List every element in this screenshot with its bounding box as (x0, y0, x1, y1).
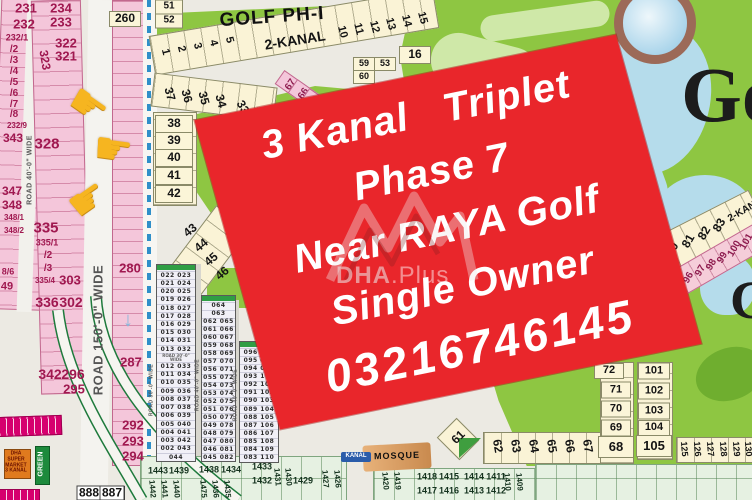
plot-number-pink: 335/4 (35, 277, 55, 285)
plot-number-row: 005 040 (157, 420, 195, 428)
pointing-hand-icon: ☛ (59, 171, 117, 230)
plot-number-row: 011 034 (157, 371, 195, 379)
plot-number-row: 051 076 (202, 405, 235, 413)
plot-number-pink: 302 (59, 295, 82, 309)
plot-number-row: 049 078 (202, 421, 235, 429)
plot-number-cream: 40 (155, 149, 193, 167)
plot-number-green-row: 1417 (417, 487, 437, 496)
down-arrow-icon: ↓ (123, 310, 133, 330)
plot-number: 3 (191, 42, 203, 51)
plot-number-pink: 49 (1, 282, 13, 293)
plot-number-row: 053 074 (202, 389, 235, 397)
plot-number-pink: /4 (10, 67, 18, 77)
plot-number: 14 (399, 14, 413, 29)
plot-number-pink: 342 (38, 367, 61, 381)
plot-number-row: 012 033 (157, 362, 195, 370)
plot-number-row: 086 107 (240, 429, 278, 437)
plot-number-cream: 51 (155, 0, 183, 15)
plot-number: 126 (692, 441, 702, 457)
plot-number-row: 006 039 (157, 412, 195, 420)
plot-number-row: 008 037 (157, 395, 195, 403)
plot-number-pink: /2 (10, 45, 18, 55)
plot-number-row: 021 024 (157, 279, 195, 287)
plot-number-pink: 8/6 (2, 268, 15, 277)
plot-number-green-row: 1420 (380, 472, 390, 490)
plot-number: 5 (223, 36, 235, 45)
plot-number-pink: 232 (13, 18, 35, 31)
plot-number: 45 (202, 250, 220, 268)
plot-number-row: 004 041 (157, 428, 195, 436)
golf-course-label: G (730, 273, 752, 327)
road-label: ROAD 30'-0" WIDE (150, 364, 155, 416)
plot-number-pink: /3 (10, 56, 18, 66)
plot-number-pink: 294 (122, 450, 144, 463)
plot-number-cream: 41 (155, 167, 193, 185)
plot-number-white: 888 (77, 486, 102, 500)
plot-number-green-row: 1441 (159, 480, 169, 498)
tiny-column: 064063062 065061 066060 067059 068058 06… (201, 295, 236, 462)
green-strip-label: GREEN (38, 452, 45, 477)
road-label: ROAD 40'-0" WIDE (234, 369, 239, 421)
plot-number-cream: 52 (155, 14, 183, 29)
plot-number-cream: 101 (638, 363, 670, 380)
golf-course-label: Go (681, 56, 752, 134)
plot-number-cream: 16 (399, 46, 431, 64)
plot-number-pink: 321 (55, 50, 77, 63)
plot-number-green-row: 1431 (272, 468, 282, 486)
plot-number-row: 047 080 (202, 437, 235, 445)
plot-number-row: 085 108 (240, 438, 278, 446)
plot-number-pink: 348 (2, 199, 22, 211)
plot-number-pink: 348/1 (4, 214, 24, 222)
plot-number-pink: 296 (61, 367, 84, 381)
plot-number: 2 (175, 45, 187, 54)
plot-number-row: 087 106 (240, 421, 278, 429)
plot-number-cream: 38 (155, 115, 193, 133)
plot-number-green-row: 1414 (464, 473, 484, 482)
plot-number-row: 050 077 (202, 413, 235, 421)
plot-number-pink: 348/2 (4, 227, 24, 235)
plot-number-green-row: 1440 (171, 480, 181, 498)
plot-number: 36 (179, 88, 194, 104)
plot-number-row: 046 081 (202, 445, 235, 453)
plot-number-green-row: 1410 (502, 473, 512, 491)
plot-number: 4 (207, 39, 219, 48)
plot-number-cream: 72 (594, 363, 624, 379)
plot-number-pink: 232/1 (6, 34, 29, 43)
plot-number-row: ROAD 30'-0" WIDE (157, 353, 195, 362)
plot-number-pink: 293 (122, 435, 144, 448)
area-label: GOLF PH-I (219, 4, 325, 30)
plot-number: 2-KANAL (726, 194, 752, 225)
plot-number: 43 (181, 221, 199, 239)
plot-number-cream: 105 (636, 435, 672, 457)
plot-number: 67 (581, 438, 595, 453)
plot-number-green-row: 1432 (252, 477, 272, 486)
plot-number: 15 (415, 11, 429, 26)
plot-number-row: 013 032 (157, 345, 195, 353)
plot-number-pink: 280 (119, 262, 141, 275)
plot-number-cream: 59 (353, 57, 375, 71)
plot-number-row: 063 (202, 310, 235, 318)
plot-number: 130 (743, 441, 752, 457)
dha-market-label: DHA SUPER MARKET 3 KANAL (5, 452, 27, 475)
plot-number: 37 (162, 86, 177, 102)
area-label: MOSQUE (374, 451, 420, 462)
plot-number-green-row: 1436 (210, 480, 220, 498)
plot-number-row: 054 073 (202, 382, 235, 390)
plot-number: 35 (196, 90, 211, 106)
plot-number-row: 059 068 (202, 342, 235, 350)
plot-number-cream: 42 (155, 185, 193, 203)
plot-number-row: 010 035 (157, 379, 195, 387)
tiny-column: 022 023021 024020 025019 026018 027017 0… (156, 264, 196, 462)
plot-number-row: 044 (157, 453, 195, 461)
plot-number-cream: 70 (601, 401, 631, 418)
plot-number-pink: /5 (10, 78, 18, 88)
plot-number: 12 (367, 20, 381, 35)
plot-number-row: 018 027 (157, 304, 195, 312)
plot-number-pink: /8 (10, 110, 18, 120)
plot-number-row: 055 072 (202, 374, 235, 382)
plot-number-pink: 323 (37, 49, 52, 71)
road-label: ROAD 40'-0" WIDE (196, 359, 201, 411)
plot-number-pink: 303 (59, 274, 81, 287)
plot-number-green-row: 1439 (169, 467, 189, 476)
plot-number-pink: 343 (3, 132, 23, 144)
plot-number-row: 022 023 (157, 271, 195, 279)
plot-number-row: 088 105 (240, 413, 278, 421)
kanal-chip-label: KANAL (341, 452, 371, 462)
plot-number-row: 016 029 (157, 320, 195, 328)
plot-number-pink: 295 (63, 383, 85, 396)
plot-number-cream: 69 (601, 420, 631, 437)
plot-number-pink: /6 (10, 89, 18, 99)
plot-number: 46 (213, 264, 231, 282)
plot-number: 2-KANAL (264, 28, 327, 51)
plot-number-pink: 231 (15, 2, 37, 15)
plot-number-row: 014 031 (157, 337, 195, 345)
plot-number-green-row: 1429 (293, 477, 313, 486)
plot-number-row: 084 109 (240, 446, 278, 454)
plot-number-row: 089 104 (240, 405, 278, 413)
plot-number-green-row: 1433 (252, 463, 272, 472)
plot-number-cream: 53 (374, 57, 396, 71)
plot-number-green-row: 1427 (320, 470, 330, 488)
plot-number-cream: 39 (155, 132, 193, 150)
plot-number-pink: 347 (2, 185, 22, 197)
plot-number-cream: 71 (601, 382, 631, 399)
plot-number-pink: 292 (122, 419, 144, 432)
plot-number: 125 (679, 441, 689, 457)
map-canvas: 022 023021 024020 025019 026018 027017 0… (0, 0, 752, 500)
road-label: ROAD 40'-0" WIDE (27, 135, 34, 205)
plot-number: 64 (527, 438, 541, 453)
plot-number-row: 058 069 (202, 350, 235, 358)
plot-number-row: 015 030 (157, 329, 195, 337)
plot-number-cream: 104 (638, 420, 670, 436)
plot-number-pink: 232/9 (7, 122, 27, 130)
road-label: ROAD 150'-0" WIDE (92, 265, 105, 395)
plot-number-row: 060 067 (202, 334, 235, 342)
plot-number-green-row: 1418 (417, 473, 437, 482)
plot-number-cream: 260 (109, 11, 141, 27)
plot-number-green-row: 1419 (392, 472, 402, 490)
plot-number: 11 (351, 22, 365, 36)
plot-number-row: 057 070 (202, 358, 235, 366)
plot-number-green-row: 1426 (332, 470, 342, 488)
plot-number-pink: /3 (44, 264, 52, 274)
plot-number-pink: /2 (44, 251, 52, 261)
plot-number-pink: 287 (120, 356, 142, 369)
plot-number-row: 020 025 (157, 287, 195, 295)
plot-number-green-row: 1438 (199, 466, 219, 475)
plot-number: 63 (509, 438, 523, 453)
plot-number-row: 064 (202, 302, 235, 310)
plot-number-row: 002 043 (157, 445, 195, 453)
plot-number: 129 (731, 441, 741, 457)
plot-number-pink: 335/1 (36, 239, 59, 248)
plot-number-green-row: 1442 (147, 480, 157, 498)
plot-number-green-row: 1443 (148, 467, 168, 476)
plot-number-pink: 328 (34, 137, 59, 152)
plot-number-cream: 102 (638, 383, 670, 400)
plot-number-row: 017 028 (157, 312, 195, 320)
plot-number-cream: 68 (598, 436, 634, 458)
plot-number-row: 048 079 (202, 429, 235, 437)
pointing-hand-icon: ☛ (90, 125, 135, 174)
plot-number: 127 (705, 441, 715, 457)
watermark-text: DHA.Plus (336, 262, 449, 290)
watermark-brand-light: .Plus (391, 262, 449, 289)
plot-number-green-row: 1415 (439, 473, 459, 482)
plot-number-green-row: 1409 (514, 473, 524, 491)
plot-number-row: 052 075 (202, 397, 235, 405)
plot-number-row: 045 082 (202, 453, 235, 461)
plot-number-row: 061 066 (202, 326, 235, 334)
plot-number: 10 (335, 25, 349, 40)
plot-number: 13 (383, 17, 397, 32)
plot-number-row: 056 071 (202, 366, 235, 374)
plot-number-pink: 336 (35, 295, 58, 309)
plot-number: 128 (718, 441, 728, 457)
plot-number-row: 003 042 (157, 436, 195, 444)
plot-number-green-row: 1435 (222, 480, 232, 498)
plot-number-cream: 103 (638, 403, 670, 420)
plot-number-cream: 60 (353, 70, 375, 84)
plot-number-green-row: 1434 (221, 466, 241, 475)
plot-number-green-row: 1413 (464, 487, 484, 496)
plot-number-row: 019 026 (157, 296, 195, 304)
plot-number-row: 062 065 (202, 318, 235, 326)
plot-number-pink: 233 (50, 16, 72, 29)
plot-number-white: 887 (100, 486, 125, 500)
plot-number-row: 007 038 (157, 404, 195, 412)
plot-number: 66 (563, 438, 577, 453)
banner-line-2: Phase 7 (349, 137, 513, 207)
plot-number-pink: 234 (50, 2, 72, 15)
plot-number: 61 (449, 428, 467, 446)
plot-number-green-row: 1416 (439, 487, 459, 496)
plot-number-pink: 335 (33, 221, 58, 236)
plot-number-row: 009 036 (157, 387, 195, 395)
plot-number: 62 (491, 438, 505, 453)
plot-number-green-row: 1475 (198, 480, 208, 498)
plot-number: 1 (159, 48, 171, 57)
plot-number: 34 (213, 93, 228, 109)
watermark-brand-bold: DHA (336, 262, 391, 289)
plot-number: 65 (545, 438, 559, 453)
plot-number-green-row: 1430 (283, 468, 293, 486)
